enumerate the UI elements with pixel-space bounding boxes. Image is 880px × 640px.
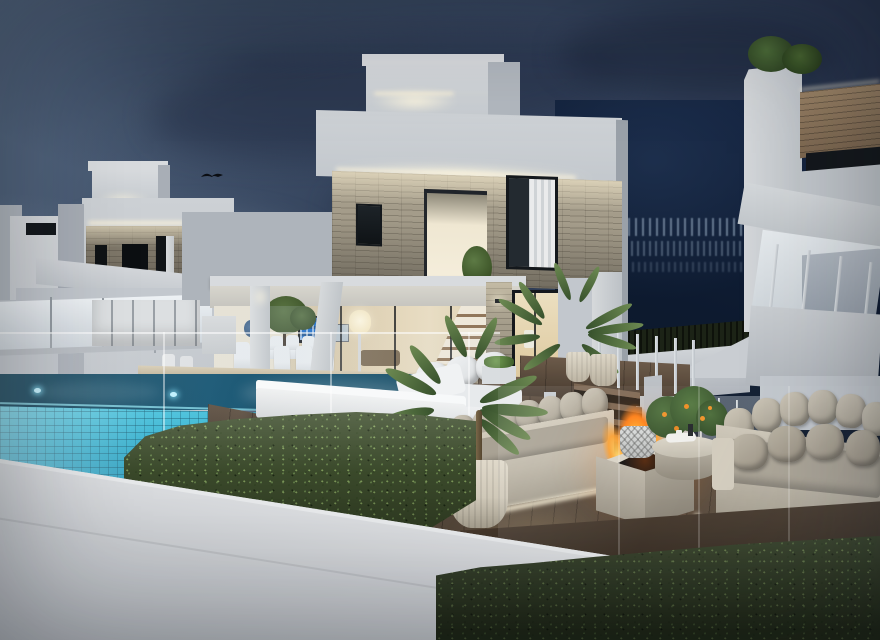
glass-top-edge	[0, 332, 500, 334]
bird-icon	[200, 170, 224, 182]
roof-greenery	[782, 44, 822, 74]
plant-trunk	[476, 410, 482, 462]
hill-buildings-row	[628, 218, 746, 236]
hill-buildings-row	[625, 241, 746, 256]
upper-window-small	[356, 204, 382, 247]
led-strip	[88, 221, 184, 225]
main-roofbox-side	[488, 62, 520, 120]
villa-render	[0, 0, 880, 640]
upper-window-curtain	[506, 175, 558, 271]
hill-buildings-row	[632, 262, 744, 272]
downlight-glow	[254, 288, 267, 306]
far-left-window	[26, 223, 56, 235]
led-strip	[374, 92, 454, 95]
